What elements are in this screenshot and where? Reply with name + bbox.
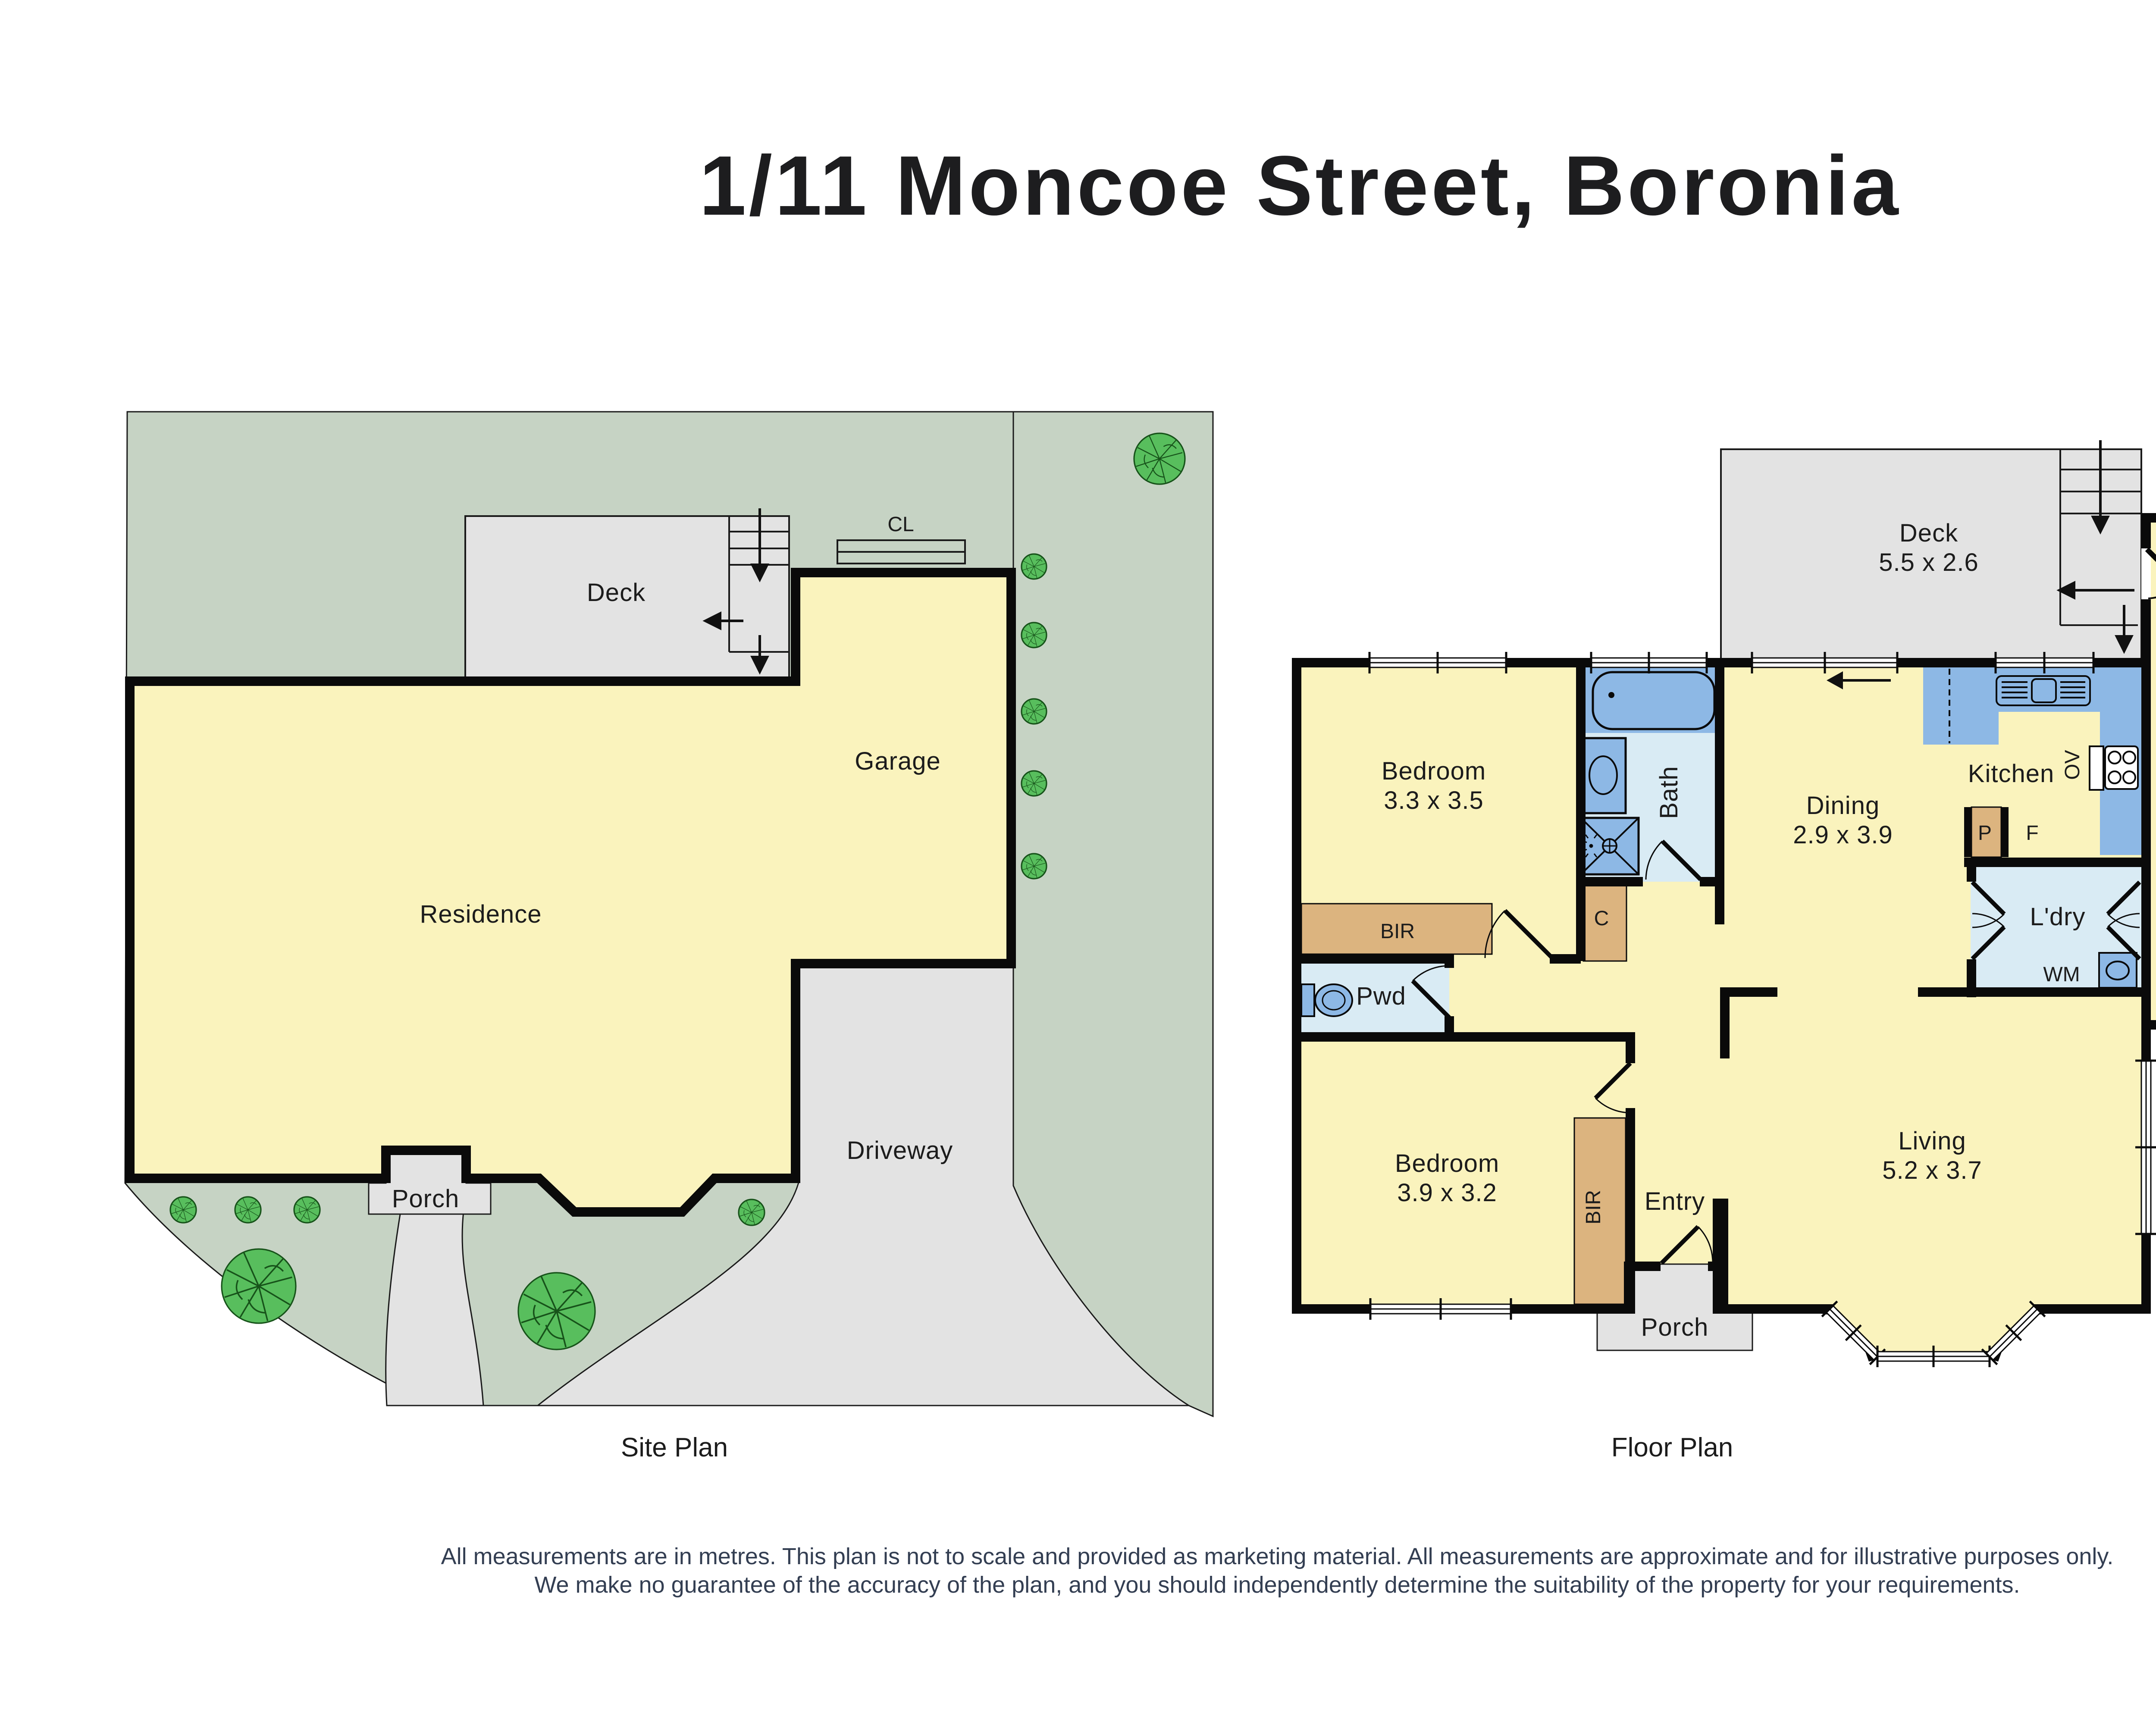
svg-text:Pwd: Pwd [1356, 982, 1406, 1010]
svg-text:3.3 x 3.5: 3.3 x 3.5 [1384, 786, 1483, 814]
svg-text:Kitchen: Kitchen [1968, 760, 2054, 788]
svg-text:Garage: Garage [855, 747, 940, 775]
svg-text:C: C [1594, 907, 1609, 930]
svg-text:Living: Living [1898, 1127, 1966, 1155]
svg-text:Bath: Bath [1655, 766, 1683, 819]
svg-text:All measurements are in metres: All measurements are in metres. This pla… [441, 1544, 2114, 1569]
svg-text:F: F [2026, 822, 2038, 845]
svg-text:Porch: Porch [1641, 1313, 1709, 1341]
svg-text:Site Plan: Site Plan [621, 1433, 728, 1462]
svg-text:3.9 x 3.2: 3.9 x 3.2 [1397, 1179, 1497, 1207]
svg-text:Residence: Residence [420, 900, 542, 928]
svg-text:5.2 x 3.7: 5.2 x 3.7 [1882, 1156, 1982, 1184]
svg-text:Driveway: Driveway [847, 1137, 953, 1165]
svg-text:Dining: Dining [1806, 792, 1880, 820]
svg-text:WM: WM [2043, 963, 2080, 986]
svg-text:1/11 Moncoe Street, Boronia: 1/11 Moncoe Street, Boronia [699, 138, 1901, 233]
svg-text:CL: CL [887, 513, 914, 536]
svg-text:Bedroom: Bedroom [1382, 757, 1486, 785]
svg-text:L'dry: L'dry [2030, 903, 2086, 931]
svg-text:Deck: Deck [1899, 519, 1958, 547]
svg-text:Porch: Porch [392, 1185, 460, 1213]
svg-text:OV: OV [2061, 750, 2084, 780]
svg-text:BIR: BIR [1582, 1190, 1605, 1224]
svg-text:We make no guarantee of the ac: We make no guarantee of the accuracy of … [534, 1572, 2020, 1598]
svg-text:BIR: BIR [1380, 920, 1415, 943]
svg-text:5.5 x 2.6: 5.5 x 2.6 [1879, 548, 1978, 576]
svg-text:Bedroom: Bedroom [1395, 1149, 1499, 1177]
svg-text:P: P [1978, 822, 1992, 845]
svg-text:Deck: Deck [587, 579, 646, 607]
svg-text:2.9 x 3.9: 2.9 x 3.9 [1793, 821, 1893, 849]
svg-text:Entry: Entry [1645, 1187, 1705, 1215]
svg-text:Floor Plan: Floor Plan [1611, 1433, 1733, 1462]
